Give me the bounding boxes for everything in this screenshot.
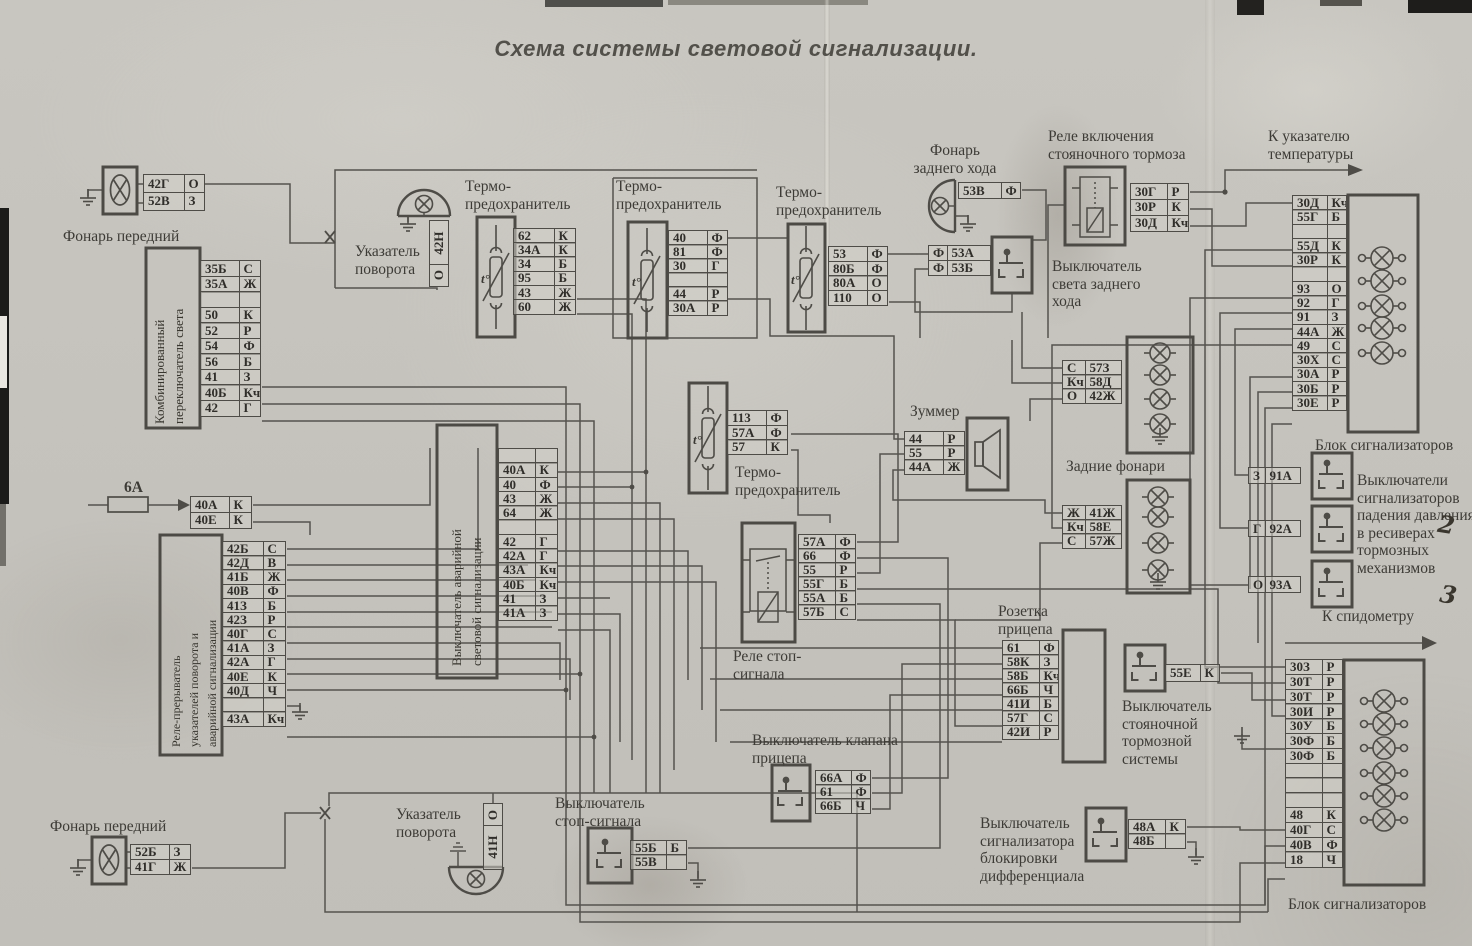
pin-color-cell: 57Ж bbox=[1085, 533, 1122, 549]
indicator-lamp-icon bbox=[1359, 342, 1406, 364]
lamp-icon bbox=[468, 871, 485, 888]
pin-code-cell: 50 bbox=[200, 307, 240, 324]
pin-color-cell: К bbox=[239, 307, 261, 324]
pin-code-cell: С bbox=[1062, 533, 1086, 549]
pin-code-cell: З bbox=[1248, 467, 1266, 484]
pin-code-cell: 52В bbox=[143, 192, 185, 211]
rear-lamp-icon bbox=[1142, 507, 1174, 527]
ground-icon bbox=[960, 215, 976, 231]
pin-code-cell: О bbox=[1248, 576, 1266, 593]
pin-code-cell: 53В bbox=[958, 182, 1002, 199]
label-turn-indicator-bottom: Указатель поворота bbox=[396, 806, 486, 841]
pin-color-cell: 93А bbox=[1265, 576, 1301, 593]
label-front-lamp-top: Фонарь передний bbox=[63, 228, 179, 246]
label-thermal-fuse-2: Термо-предохранитель bbox=[616, 178, 734, 213]
pin-code-cell: 30Е bbox=[1292, 395, 1328, 411]
pins-parking-brake-relay: 30ГР30РК30ДКч bbox=[1130, 183, 1189, 232]
pin-color-cell: Б bbox=[239, 353, 261, 370]
pin-row: 30ГР bbox=[1130, 183, 1189, 200]
svg-text:t°: t° bbox=[481, 271, 491, 286]
pin-row: 44АЖ bbox=[904, 459, 965, 475]
pins-pressure-switch-3: О93А bbox=[1248, 576, 1301, 593]
label-hazard-switch-line1: Выключатель аварийной bbox=[449, 529, 465, 666]
pins-rear-lamps: Ж41ЖКч58ЕС57Ж bbox=[1062, 505, 1122, 549]
pin-code-cell: 30Р bbox=[1130, 199, 1168, 216]
pin-color-cell: Ж bbox=[169, 859, 191, 875]
rear-lamp-icon bbox=[1144, 389, 1176, 409]
front-lamp-icon bbox=[100, 845, 119, 875]
pins-stop-signal-relay: 57АФ66Ф55Р55ГБ55АБ57БС bbox=[798, 534, 856, 620]
label-hazard-switch-line2: световой сигнализации bbox=[469, 538, 485, 667]
lamp-icon bbox=[932, 198, 949, 215]
pin-row: 42Г bbox=[200, 400, 261, 417]
pin-color-cell: Ч bbox=[1322, 851, 1343, 867]
pin-color-cell: 53Б bbox=[947, 260, 991, 276]
ground-icon bbox=[1188, 848, 1204, 864]
indicator-lamp-icon bbox=[1359, 270, 1406, 292]
pin-code-cell: О bbox=[1062, 388, 1086, 404]
pins-fuse-6a: 40АК40ЕК bbox=[190, 496, 252, 529]
label-reverse-lamp: Фонарь заднего хода bbox=[905, 142, 1005, 177]
label-combo-switch-line1: Комбинированный bbox=[152, 320, 168, 424]
pin-color-cell: З bbox=[535, 605, 558, 621]
pin-color-cell: 92А bbox=[1265, 520, 1301, 537]
pin-row: 53ВФ bbox=[958, 182, 1021, 199]
pins-combo-light-switch: 35БС35АЖ50К52Р54Ф56Б41З40БКч42Г bbox=[200, 260, 261, 417]
svg-text:t°: t° bbox=[791, 272, 801, 287]
ground-icon bbox=[80, 189, 96, 205]
rear-lamp-icon bbox=[1144, 343, 1176, 363]
pin-color-cell: З bbox=[239, 369, 261, 386]
indicator-lamp-icon bbox=[1359, 295, 1406, 317]
component-boxes bbox=[92, 167, 1424, 885]
label-signal-block-top: Блок сигнализаторов bbox=[1315, 437, 1453, 455]
pin-row: 54Ф bbox=[200, 338, 261, 355]
pin-color-cell: С bbox=[239, 260, 261, 277]
pin-code-cell: 56 bbox=[200, 353, 240, 370]
pin-color-cell: К bbox=[229, 496, 252, 513]
pin-row: 30ЕР bbox=[1292, 395, 1347, 411]
label-fuse-6a: 6А bbox=[124, 479, 143, 497]
pin-row: Ф53Б bbox=[928, 260, 991, 276]
page-title: Схема системы световой сигнализации. bbox=[0, 36, 1472, 62]
pin-code-cell: 44А bbox=[904, 459, 944, 475]
label-front-lamp-bottom: Фонарь передний bbox=[50, 818, 166, 836]
pins-rear-lamps-upper: С57ЗКч58ДО42Ж bbox=[1062, 360, 1122, 404]
pin-color-cell bbox=[239, 291, 261, 308]
indicator-lamp-icon bbox=[1359, 317, 1406, 339]
pin-color-cell: Р bbox=[1039, 725, 1059, 741]
indicator-lamp-icon bbox=[1361, 785, 1408, 807]
pin-code-cell: 66Б bbox=[815, 798, 852, 814]
pin-color-cell: Ж bbox=[943, 459, 965, 475]
pin-code-cell: 110 bbox=[828, 290, 868, 306]
label-trailer-socket: Розетка прицепа bbox=[998, 603, 1083, 638]
pin-code-cell: 42Н bbox=[429, 220, 449, 265]
speaker-icon bbox=[975, 430, 1000, 478]
pin-code-cell: Г bbox=[1248, 520, 1266, 537]
pin-color-cell: Р bbox=[239, 322, 261, 339]
pin-color-cell: К bbox=[1200, 664, 1220, 682]
label-flasher-relay-line2: указателей поворота и bbox=[187, 633, 202, 747]
indicator-lamp-icon bbox=[1361, 713, 1408, 735]
pin-row: 41ГЖ bbox=[130, 859, 191, 875]
pin-color-cell: Ч bbox=[851, 798, 871, 814]
pin-code-cell: 40Б bbox=[200, 384, 240, 401]
label-to-speedometer: К спидометру bbox=[1322, 608, 1414, 626]
pin-color-cell: Р bbox=[707, 300, 728, 316]
pin-color-cell: К bbox=[766, 439, 788, 455]
indicator-lamp-icon bbox=[1361, 737, 1408, 759]
pin-row: О93А bbox=[1248, 576, 1301, 593]
ground-icon bbox=[690, 871, 706, 887]
pin-row: 41АЗ bbox=[498, 605, 558, 621]
pin-code-cell: 41Г bbox=[130, 859, 170, 875]
pin-code-cell: 41Н bbox=[483, 825, 503, 870]
pin-row: 40БКч bbox=[200, 384, 261, 401]
pin-code-cell: 35А bbox=[200, 276, 240, 293]
pins-flasher-relay: 42БС42ДВ41БЖ40ВФ41ЗБ42ЗР40ГС41АЗ42АГ40ЕК… bbox=[222, 541, 286, 727]
pin-row: 110О bbox=[828, 290, 888, 306]
pins-thermal-fuse-1: 62К34АК34Б95Б43Ж60Ж bbox=[513, 228, 576, 315]
label-stop-signal-relay: Реле стоп-сигнала bbox=[733, 648, 825, 683]
pin-code-cell: 35Б bbox=[200, 260, 240, 277]
pin-color-cell: Кч bbox=[1167, 215, 1189, 232]
pins-stop-signal-switch: 55ББ55В bbox=[630, 840, 687, 870]
label-reverse-light-switch: Выключатель света заднего хода bbox=[1052, 258, 1164, 311]
label-flasher-relay-line3: аварийной сигнализации bbox=[205, 620, 220, 747]
pins-mid-thermal-fuse: 113Ф57АФ57К bbox=[727, 410, 788, 455]
pin-row: Г92А bbox=[1248, 520, 1301, 537]
pin-color-cell: О bbox=[184, 174, 205, 193]
pin-color-cell: З bbox=[184, 192, 205, 211]
pin-code-cell: 42 bbox=[200, 400, 240, 417]
switch-icon bbox=[999, 250, 1023, 277]
pin-row: 30АР bbox=[668, 300, 728, 316]
pin-code-cell: 41А bbox=[498, 605, 536, 621]
wire-crossing-icon bbox=[320, 807, 330, 819]
pin-row: 57К bbox=[727, 439, 788, 455]
fuse-icon bbox=[108, 497, 148, 512]
lamp-icon bbox=[416, 196, 433, 213]
label-combo-switch-line2: переключатель света bbox=[171, 309, 187, 424]
label-thermal-fuse-1: Термо-предохранитель bbox=[465, 178, 583, 213]
indicator-lamp-icon bbox=[1361, 762, 1408, 784]
pin-row: 57БС bbox=[798, 604, 856, 620]
pin-code-cell: 48Б bbox=[1128, 833, 1166, 849]
pin-color-cell: 91А bbox=[1265, 467, 1301, 484]
pin-row: 52ВЗ bbox=[143, 192, 205, 211]
svg-text:t°: t° bbox=[693, 432, 703, 447]
pin-color-cell: Кч bbox=[263, 711, 286, 727]
pin-code-cell: 41 bbox=[200, 369, 240, 386]
label-trailer-valve-switch: Выключатель клапана прицепа bbox=[752, 732, 912, 767]
label-diff-lock-switch: Выключатель сигнализатора блокировки диф… bbox=[980, 815, 1098, 885]
pins-signal-block-top: 30ДКч55ГБ55ДК30РК93О92Г91З44АЖ49С30ХС30А… bbox=[1292, 195, 1347, 411]
indicator-lamp-icon bbox=[1359, 247, 1406, 269]
pins-diff-lock-switch: 48АК48Б bbox=[1128, 819, 1186, 849]
indicator-lamp-icon bbox=[1361, 690, 1408, 712]
pin-row bbox=[200, 291, 261, 308]
rear-lamp-icon bbox=[1142, 487, 1174, 507]
pin-row: 55ЕК bbox=[1165, 664, 1220, 682]
ground-icon bbox=[400, 215, 416, 231]
label-parking-brake-relay: Реле включения стояночного тормоза bbox=[1048, 128, 1228, 163]
front-lamp-icon bbox=[111, 175, 130, 205]
pins-hazard-switch: 40АК40Ф43Ж64Ж42Г42АГ43АКч40БКч41З41АЗ bbox=[498, 448, 558, 621]
label-stop-signal-switch: Выключатель стоп-сигнала bbox=[555, 795, 667, 830]
indicator-lamp-icon bbox=[1361, 809, 1408, 831]
pin-row: 30ДКч bbox=[1130, 215, 1189, 232]
pin-row: 43АКч bbox=[222, 711, 286, 727]
switch-icon bbox=[1319, 461, 1343, 488]
pins-thermal-fuse-3: 53Ф80БФ80АО110О bbox=[828, 246, 888, 306]
ground-icon bbox=[70, 859, 86, 875]
pin-color-cell: О bbox=[483, 803, 503, 826]
label-flasher-relay-line1: Реле-прерыватель bbox=[169, 655, 184, 747]
pins-reverse-lamp: 53ВФ bbox=[958, 182, 1021, 199]
pin-row: 42ГО bbox=[143, 174, 205, 193]
pin-row: 35БС bbox=[200, 260, 261, 277]
scanned-wiring-diagram-page: { "title": "Схема системы световой сигна… bbox=[0, 0, 1472, 946]
pin-code-cell: 18 bbox=[1285, 851, 1323, 867]
pin-code-cell: 42Г bbox=[143, 174, 185, 193]
pin-color-cell: О bbox=[429, 264, 449, 287]
pin-code-cell: 57 bbox=[727, 439, 767, 455]
pin-row: 30РК bbox=[1130, 199, 1189, 216]
rear-lamp-icon bbox=[1142, 533, 1174, 553]
pin-code-cell: 40Е bbox=[190, 512, 230, 529]
pin-code-cell: Ф bbox=[928, 260, 948, 276]
pin-row: 42ИР bbox=[1002, 725, 1059, 741]
pin-code-cell: 52 bbox=[200, 322, 240, 339]
pin-code-cell: 30А bbox=[668, 300, 708, 316]
pins-pressure-switch-2: Г92А bbox=[1248, 520, 1301, 537]
label-rear-lamps: Задние фонари bbox=[1066, 458, 1165, 476]
pins-reverse-light-switch: Ф53АФ53Б bbox=[928, 245, 991, 276]
pins-parking-brake-switch: 55ЕК bbox=[1165, 664, 1220, 682]
pin-row: 55В bbox=[630, 854, 687, 870]
label-to-temp-gauge: К указателю температуры bbox=[1268, 128, 1393, 163]
pin-color-cell: Г bbox=[239, 400, 261, 417]
pin-code-cell: 42И bbox=[1002, 725, 1040, 741]
switch-icon bbox=[1132, 653, 1156, 680]
pins-signal-block-bottom: 30ЗР30ТР30ТР30ИР30УБ30ФБ30ФБ48К40ГС40ВФ1… bbox=[1285, 659, 1343, 868]
pin-color-cell: К bbox=[1167, 199, 1189, 216]
relay-icon bbox=[1072, 177, 1118, 237]
pins-pressure-switch-1: З91А bbox=[1248, 467, 1301, 484]
pin-color-cell: О bbox=[867, 290, 888, 306]
switch-icon bbox=[1319, 514, 1343, 541]
pin-color-cell: Ж bbox=[554, 299, 576, 315]
rear-lamp-icon bbox=[1144, 365, 1176, 385]
pin-code-cell: 30Д bbox=[1130, 215, 1168, 232]
label-thermal-fuse-3: Термо-предохранитель bbox=[776, 184, 894, 219]
pin-code-cell bbox=[200, 291, 240, 308]
switch-icon bbox=[597, 840, 621, 867]
pins-turn-indicator-bottom: О 41Н bbox=[483, 803, 503, 870]
pin-code-cell: 30Г bbox=[1130, 183, 1168, 200]
label-signal-block-bottom: Блок сигнализаторов bbox=[1288, 896, 1426, 914]
switch-icon bbox=[1319, 569, 1343, 596]
pin-row: О42Ж bbox=[1062, 388, 1122, 404]
pin-color-cell: Ж bbox=[239, 276, 261, 293]
pin-color-cell bbox=[666, 854, 687, 870]
pin-code-cell: 40А bbox=[190, 496, 230, 513]
pin-row: 18Ч bbox=[1285, 851, 1343, 867]
pins-buzzer: 44Р55Р44АЖ bbox=[904, 431, 965, 475]
pin-color-cell: К bbox=[229, 512, 252, 529]
pin-code-cell: 57Б bbox=[798, 604, 836, 620]
pin-code-cell: 60 bbox=[513, 299, 555, 315]
pins-front-lamp-bottom: 52БЗ41ГЖ bbox=[130, 844, 191, 875]
pin-color-cell: Кч bbox=[239, 384, 261, 401]
pin-color-cell: Р bbox=[1327, 395, 1347, 411]
pins-turn-indicator-top: 42Н О bbox=[429, 220, 449, 287]
pin-row: 50К bbox=[200, 307, 261, 324]
pin-code-cell: 54 bbox=[200, 338, 240, 355]
pin-color-cell: С bbox=[835, 604, 856, 620]
label-parking-brake-switch: Выключатель стояночной тормозной системы bbox=[1122, 698, 1232, 768]
pin-row: 56Б bbox=[200, 353, 261, 370]
pin-code-cell: 55Е bbox=[1165, 664, 1201, 682]
switch-icon bbox=[778, 778, 802, 805]
pin-row: 66БЧ bbox=[815, 798, 871, 814]
pins-thermal-fuse-2: 40Ф81Ф30Г44Р30АР bbox=[668, 230, 728, 316]
pin-row: 35АЖ bbox=[200, 276, 261, 293]
pin-color-cell bbox=[1165, 833, 1186, 849]
pin-code-cell: 55В bbox=[630, 854, 667, 870]
pin-color-cell: Ф bbox=[239, 338, 261, 355]
pin-row: С57Ж bbox=[1062, 533, 1122, 549]
wire-crossing-icon bbox=[325, 231, 335, 243]
pin-row: З91А bbox=[1248, 467, 1301, 484]
pin-color-cell: Ф bbox=[1001, 182, 1021, 199]
relay-icon bbox=[742, 549, 795, 622]
pin-row: 41З bbox=[200, 369, 261, 386]
pins-trailer-socket: 61Ф58КЗ58БКч66БЧ41ИБ57ГС42ИР bbox=[1002, 640, 1059, 740]
pin-row: 48Б bbox=[1128, 833, 1186, 849]
label-mid-thermal-fuse: Термо-предохранитель bbox=[735, 464, 855, 499]
pin-color-cell: 42Ж bbox=[1085, 388, 1122, 404]
svg-text:t°: t° bbox=[632, 274, 642, 289]
pin-row: 52Р bbox=[200, 322, 261, 339]
pin-row: 40АК bbox=[190, 496, 252, 513]
pin-row: 60Ж bbox=[513, 299, 576, 315]
pin-color-cell: Р bbox=[1167, 183, 1189, 200]
arrow-to-temp-gauge bbox=[1348, 164, 1363, 176]
arrow-fuse-feed bbox=[178, 499, 190, 511]
pin-row: 40ЕК bbox=[190, 512, 252, 529]
label-buzzer: Зуммер bbox=[910, 403, 960, 421]
pins-trailer-valve-switch: 66АФ61Ф66БЧ bbox=[815, 770, 871, 814]
pin-code-cell: 43А bbox=[222, 711, 264, 727]
arrow-to-speedometer bbox=[1422, 636, 1437, 650]
pins-front-lamp-top: 42ГО52ВЗ bbox=[143, 174, 205, 211]
